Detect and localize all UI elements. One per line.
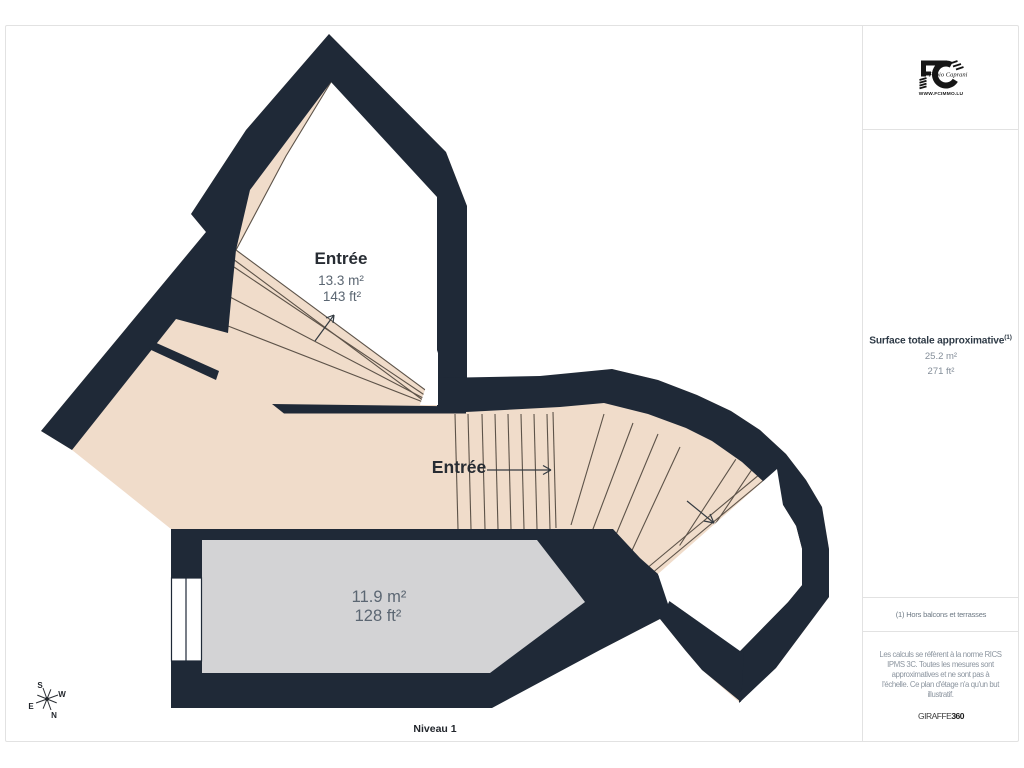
svg-text:W: W: [58, 690, 66, 699]
svg-text:Niveau 1: Niveau 1: [413, 723, 456, 735]
svg-text:Fabio Caprani: Fabio Caprani: [928, 72, 968, 79]
svg-text:128 ft²: 128 ft²: [355, 607, 402, 625]
svg-text:143 ft²: 143 ft²: [323, 289, 362, 304]
svg-text:N: N: [51, 711, 57, 720]
svg-text:13.3 m²: 13.3 m²: [318, 273, 364, 288]
svg-text:Entrée: Entrée: [315, 249, 368, 268]
svg-text:S: S: [37, 681, 43, 690]
svg-text:Entrée: Entrée: [432, 457, 487, 477]
svg-text:WWW.FCIMMO.LU: WWW.FCIMMO.LU: [919, 91, 964, 97]
svg-text:11.9 m²: 11.9 m²: [352, 588, 407, 606]
svg-text:E: E: [28, 702, 34, 711]
